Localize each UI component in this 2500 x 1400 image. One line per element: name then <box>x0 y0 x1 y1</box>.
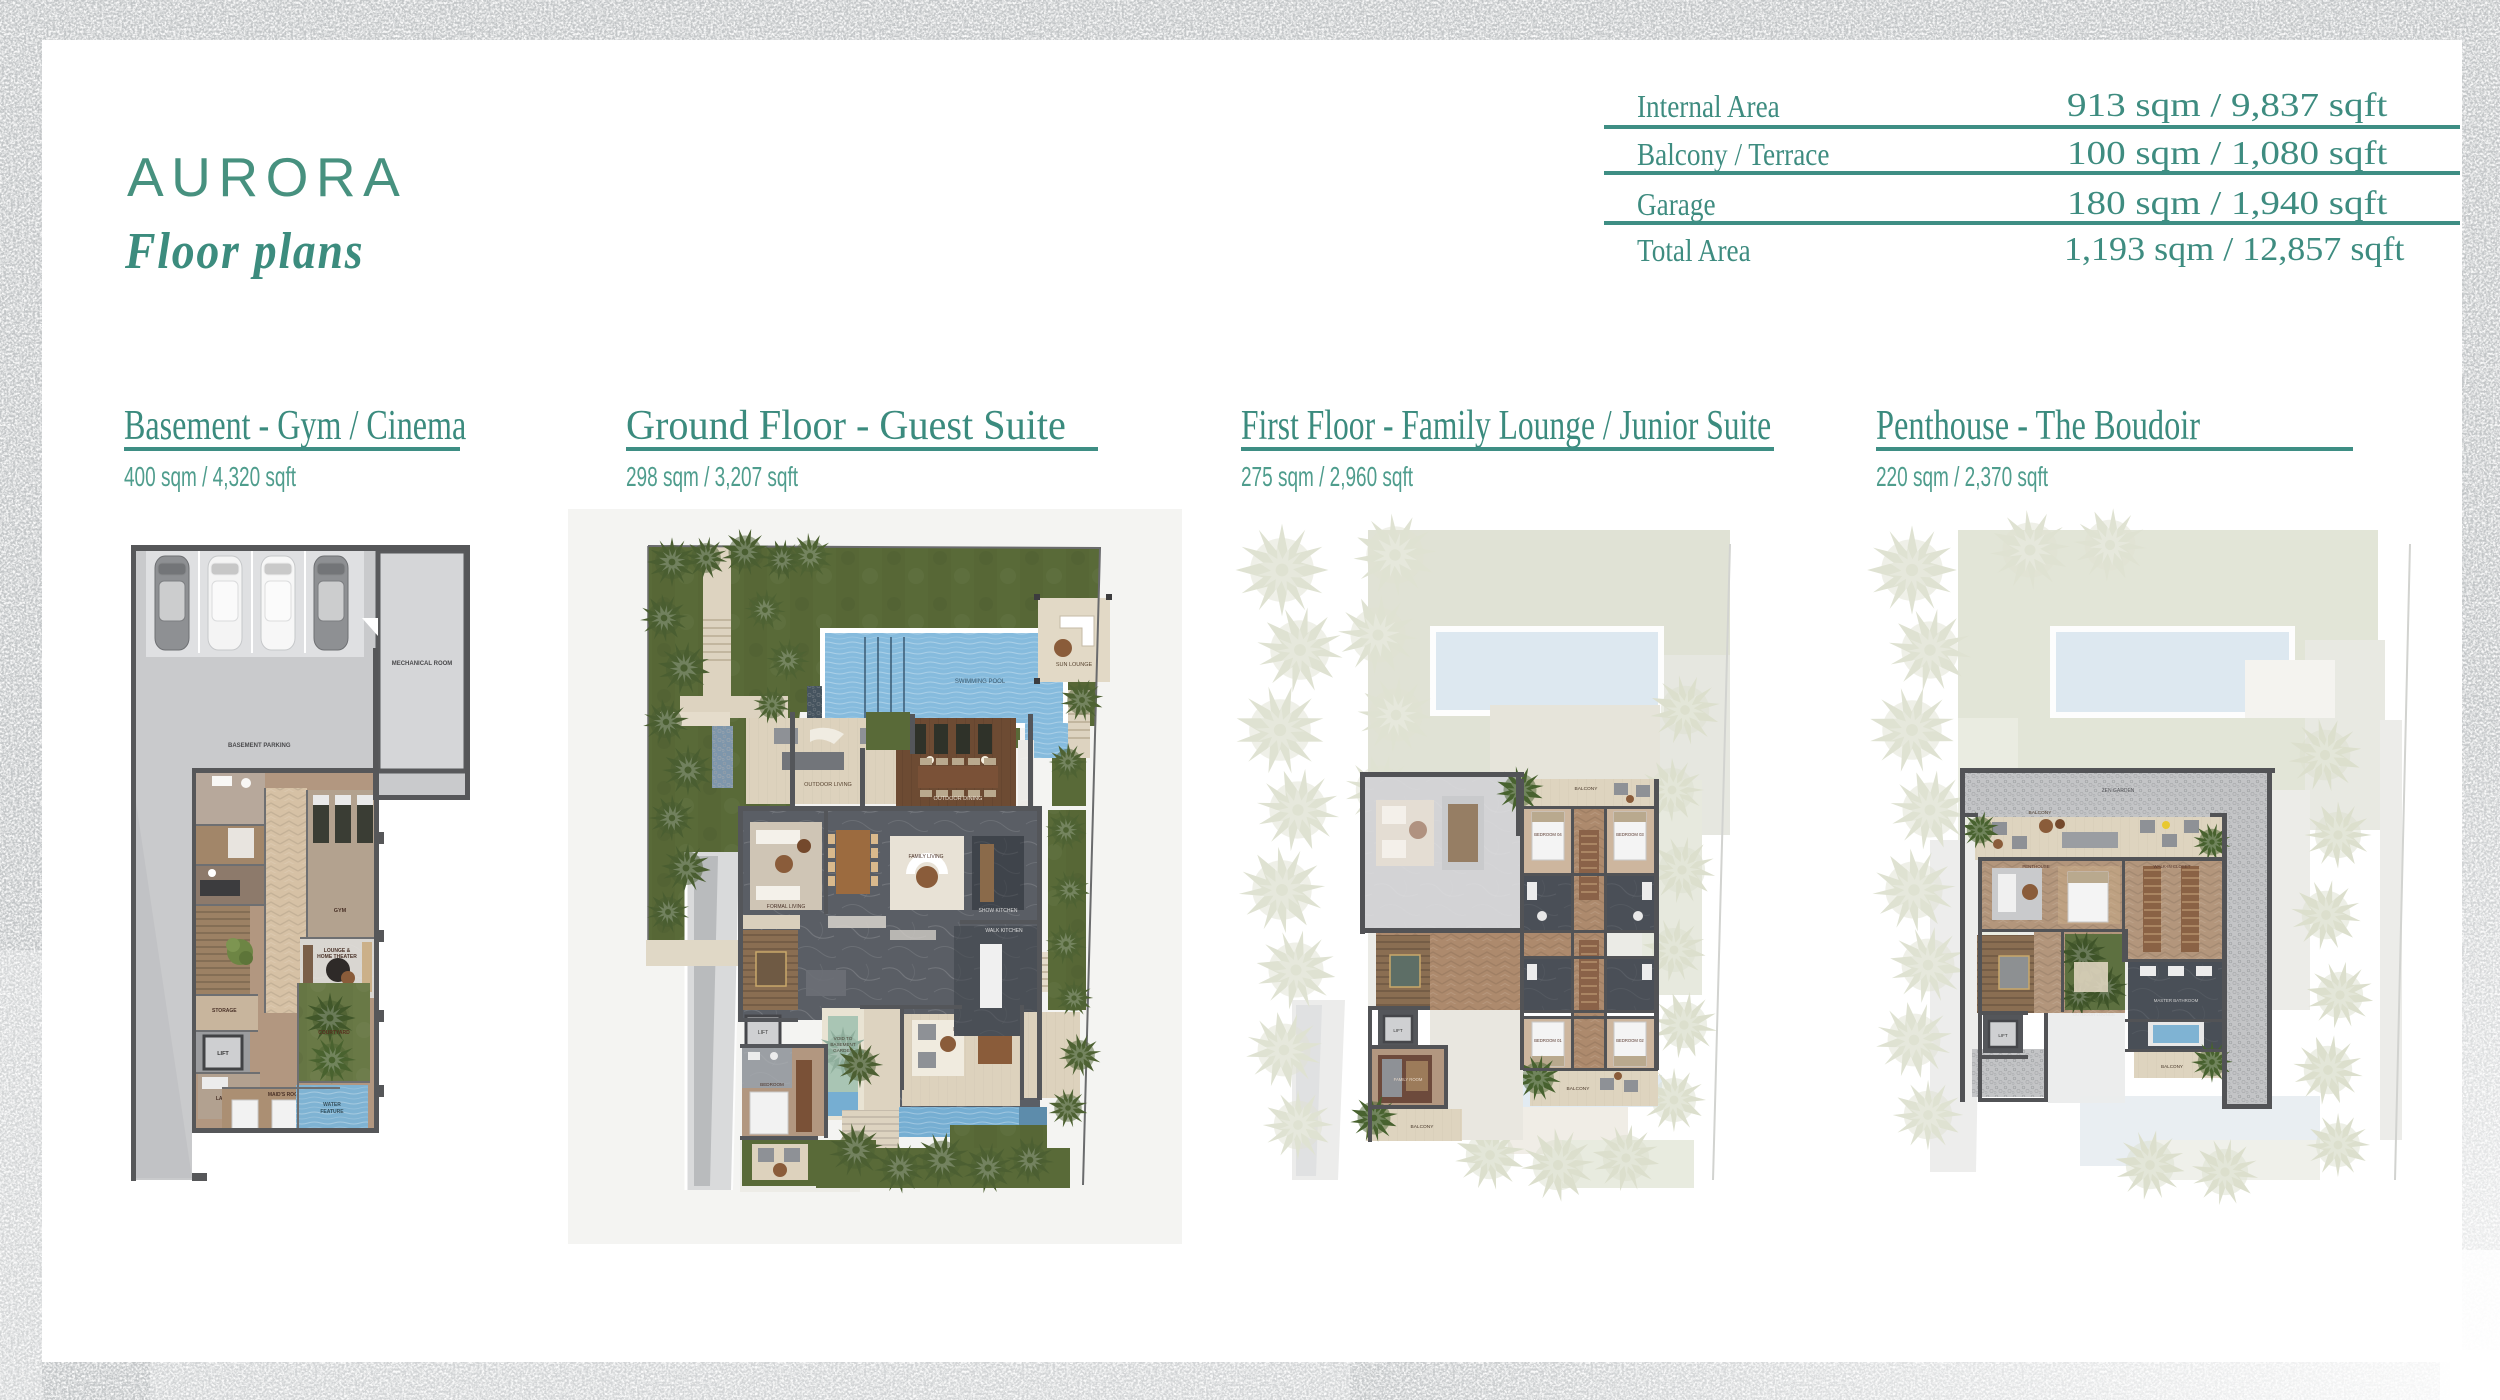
svg-text:LIFT: LIFT <box>1393 1028 1403 1033</box>
svg-text:PENTHOUSE: PENTHOUSE <box>2022 864 2049 869</box>
svg-text:FEATURE: FEATURE <box>320 1109 344 1115</box>
svg-text:WALK KITCHEN: WALK KITCHEN <box>985 928 1023 934</box>
svg-text:BEDROOM: BEDROOM <box>760 1082 784 1087</box>
svg-text:COURTYARD: COURTYARD <box>318 1030 350 1036</box>
svg-text:BALCONY: BALCONY <box>2161 1064 2183 1069</box>
svg-text:LIFT: LIFT <box>758 1030 768 1036</box>
svg-text:OUTDOOR DINING: OUTDOOR DINING <box>934 796 983 802</box>
svg-text:MECHANICAL ROOM: MECHANICAL ROOM <box>392 661 453 667</box>
svg-text:WALK-IN CLOSET: WALK-IN CLOSET <box>2154 864 2191 869</box>
svg-text:BALCONY: BALCONY <box>1411 1124 1435 1130</box>
svg-text:BASEMENT: BASEMENT <box>830 1042 855 1047</box>
svg-text:BEDROOM 03: BEDROOM 03 <box>1616 832 1644 837</box>
svg-text:OUTDOOR LIVING: OUTDOOR LIVING <box>804 782 852 788</box>
svg-text:BALCONY: BALCONY <box>1567 1086 1591 1092</box>
svg-text:FAMILY LIVING: FAMILY LIVING <box>908 854 943 860</box>
svg-text:GYM: GYM <box>334 908 347 914</box>
svg-text:SWIMMING POOL: SWIMMING POOL <box>955 679 1006 685</box>
svg-text:SUN LOUNGE: SUN LOUNGE <box>1056 662 1093 668</box>
svg-text:VOID TO: VOID TO <box>834 1036 853 1041</box>
svg-text:BALCONY: BALCONY <box>1575 786 1599 792</box>
svg-text:BEDROOM 01: BEDROOM 01 <box>1534 1038 1562 1043</box>
svg-text:BASEMENT PARKING: BASEMENT PARKING <box>228 743 291 749</box>
svg-text:BEDROOM 02: BEDROOM 02 <box>1616 1038 1644 1043</box>
svg-text:BEDROOM 04: BEDROOM 04 <box>1534 832 1562 837</box>
svg-text:FAMILY ROOM: FAMILY ROOM <box>1394 1077 1423 1082</box>
svg-text:SHOW KITCHEN: SHOW KITCHEN <box>979 908 1018 914</box>
svg-text:BALCONY: BALCONY <box>2029 810 2053 816</box>
svg-text:WATER: WATER <box>323 1102 341 1108</box>
svg-text:LIFT: LIFT <box>1998 1033 2008 1038</box>
svg-text:HOME THEATER: HOME THEATER <box>317 954 357 960</box>
svg-text:LIFT: LIFT <box>217 1051 229 1057</box>
svg-text:ZEN GARDEN: ZEN GARDEN <box>2102 788 2135 794</box>
svg-text:MASTER BATHROOM: MASTER BATHROOM <box>2154 998 2199 1003</box>
svg-text:GARDEN: GARDEN <box>833 1048 853 1053</box>
svg-text:FORMAL LIVING: FORMAL LIVING <box>767 904 806 910</box>
svg-text:STORAGE: STORAGE <box>212 1008 237 1014</box>
